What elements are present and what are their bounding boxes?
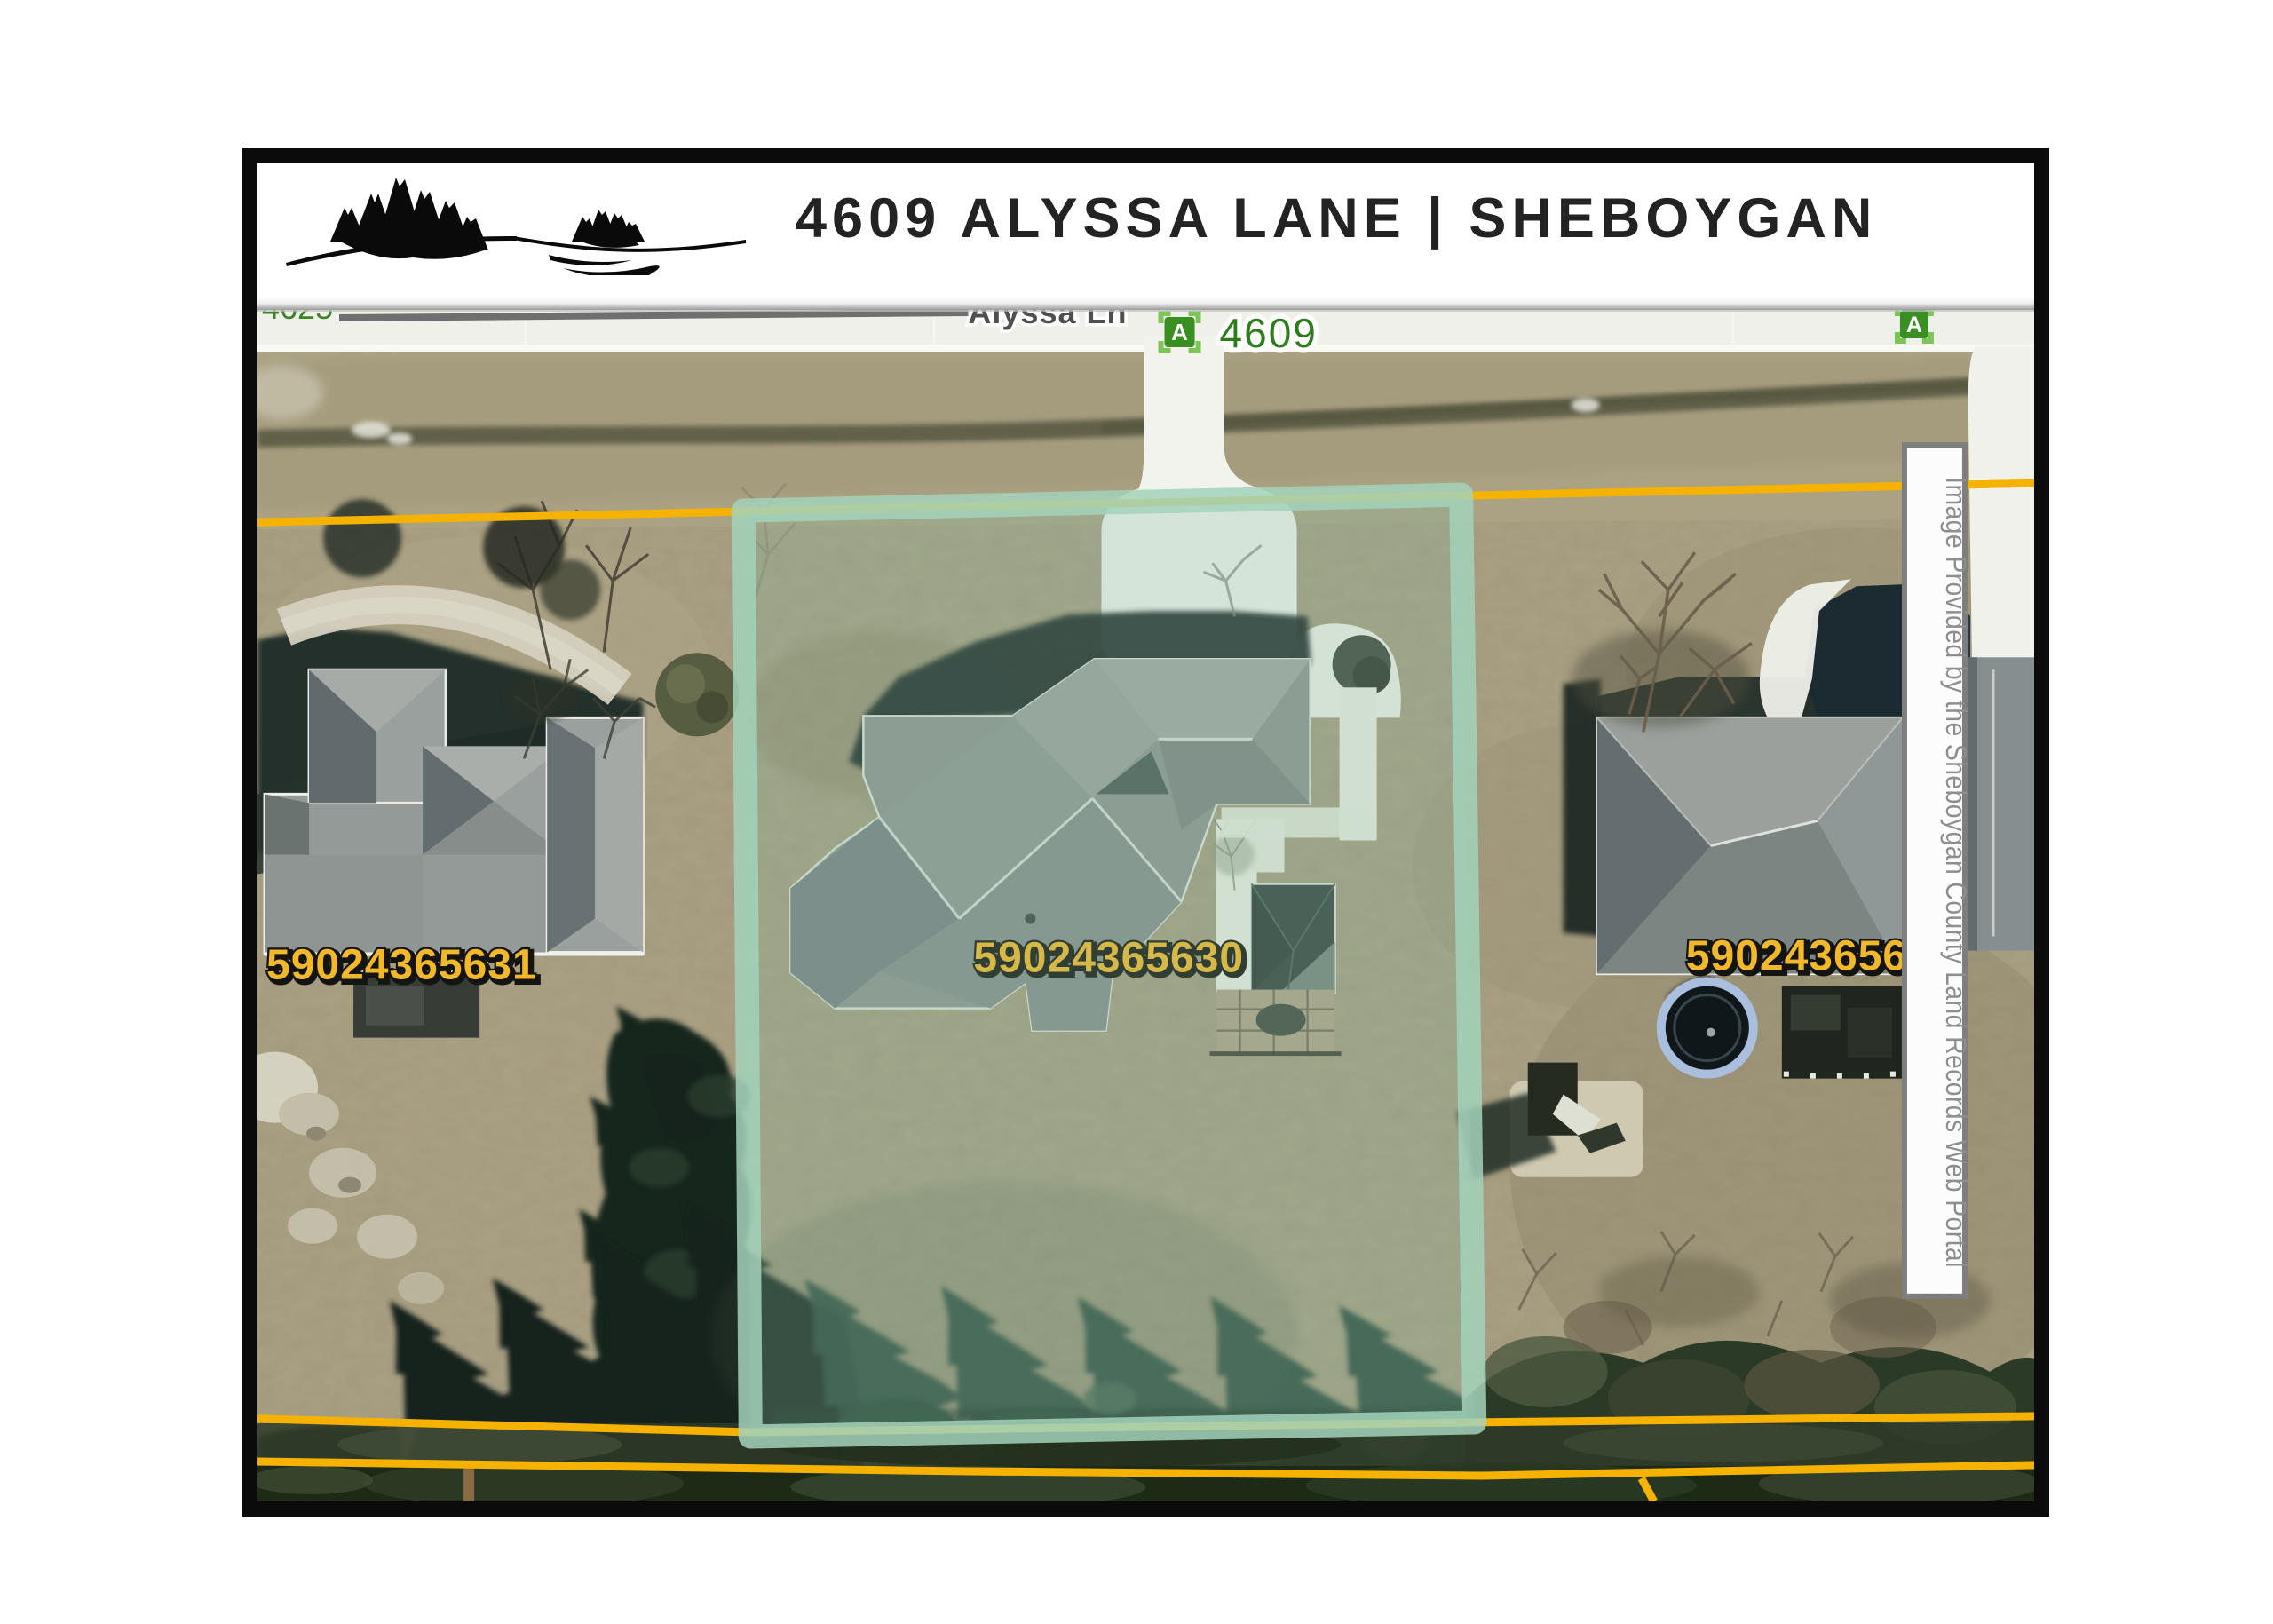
svg-text:Image Provided by the Sheboyga: Image Provided by the Sheboygan County L… [1940, 477, 1972, 1268]
svg-text:A: A [1171, 319, 1188, 345]
svg-text:4609: 4609 [1220, 310, 1318, 356]
svg-text:A: A [1906, 313, 1922, 337]
svg-text:59024365631: 59024365631 [266, 942, 537, 989]
